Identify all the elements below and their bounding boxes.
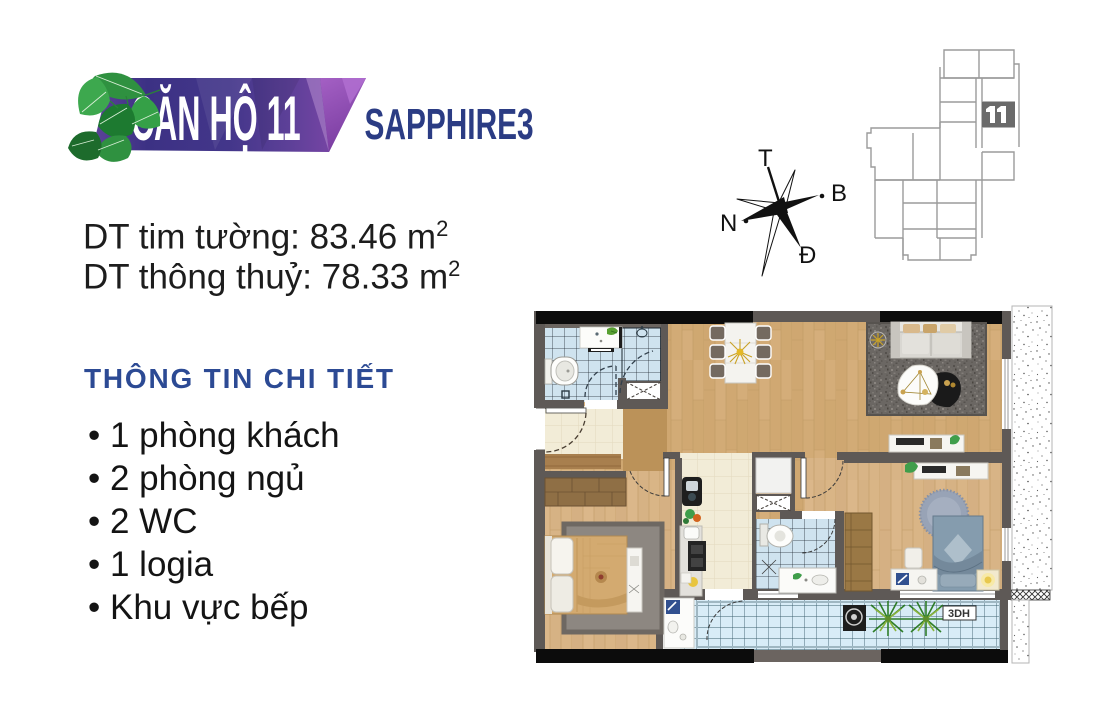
svg-text:SAPPHIRE3: SAPPHIRE3 — [365, 100, 534, 149]
svg-text:T: T — [758, 145, 773, 172]
svg-text:N: N — [720, 210, 737, 237]
svg-text:3DH: 3DH — [948, 608, 970, 620]
svg-text:Đ: Đ — [799, 242, 816, 269]
svg-text:B: B — [831, 180, 847, 207]
